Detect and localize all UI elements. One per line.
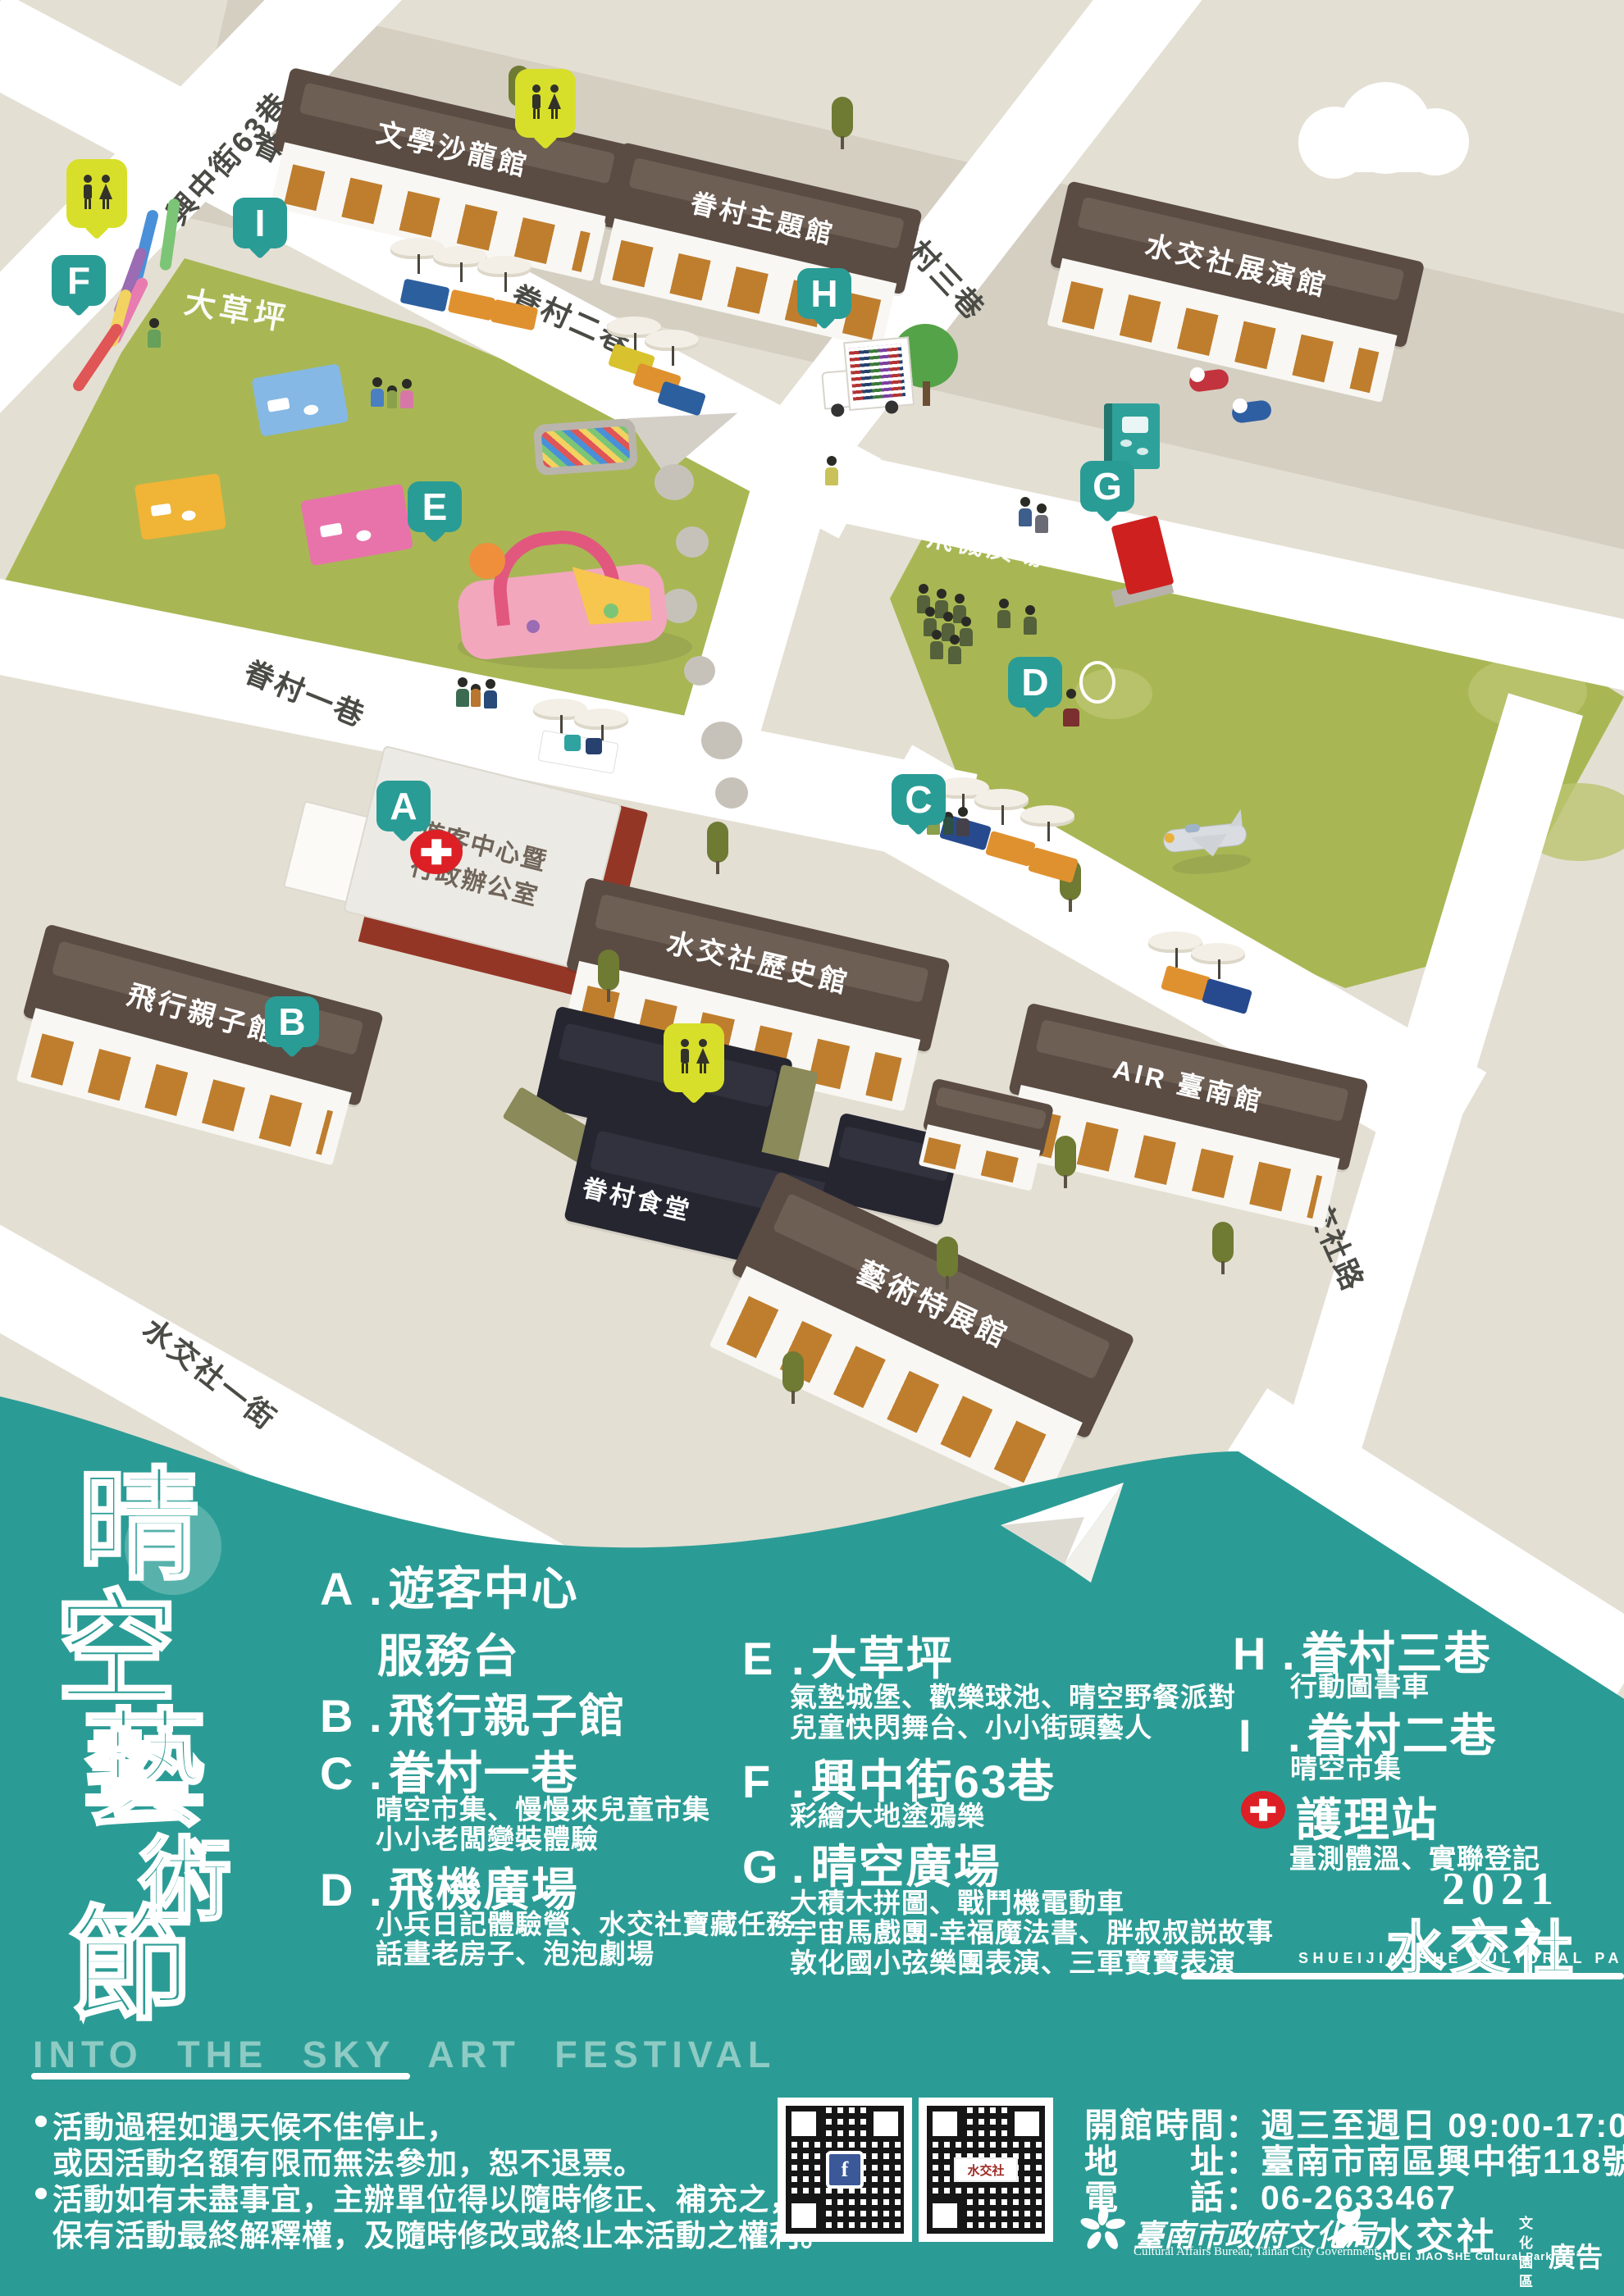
festival-logo-char: 節 (70, 1904, 193, 2027)
qr-finder (786, 2106, 822, 2142)
qr-finder (868, 2106, 904, 2142)
bureau-flower-icon (1080, 2206, 1126, 2252)
brand-park-en: SHUEIJIAOSHE CULTURAL PARK (1298, 1950, 1624, 1967)
legend-letter: D (320, 1863, 367, 1916)
qr-finder (786, 2198, 822, 2234)
facebook-icon: f (826, 2151, 864, 2189)
legend-letter: I (1239, 1709, 1286, 1762)
legend-section: 晴 空 藝 術 節 A.遊客中心 服務台 B.飛行親子館 C.眷村一巷 晴空市集… (0, 0, 1624, 2296)
festival-title-en: INTO THE SKY ART FESTIVAL (33, 2034, 776, 2076)
legend-detail: 話畫老房子、泡泡劇場 (376, 1932, 655, 1971)
qr-finder (1009, 2106, 1045, 2142)
legend-letter: A (320, 1562, 367, 1615)
qr-finder (927, 2198, 963, 2234)
qr-code-facebook: f (778, 2098, 912, 2242)
festival-logo-char: 晴 (78, 1466, 199, 1588)
legend-letter: G (742, 1840, 790, 1893)
legend-item-a: A.遊客中心 (320, 1552, 579, 1619)
legend-detail: 小小老闆變裝體驗 (376, 1817, 599, 1856)
festival-logo-char: 藝 (82, 1707, 207, 1832)
qr-finder (927, 2106, 963, 2142)
legend-title: 飛行親子館 (389, 1690, 627, 1742)
paper-airplane-icon (992, 1468, 1140, 1603)
legend-detail: 敦化國小弦樂團表演、三軍寶寶表演 (790, 1941, 1236, 1980)
note-line: 保有活動最終解釋權，及隨時修改或終止本活動之權利。 (52, 2211, 832, 2255)
legend-detail: 晴空市集 (1290, 1747, 1402, 1786)
ad-label: 廣告 (1549, 2235, 1603, 2275)
legend-letter: H (1233, 1627, 1280, 1680)
legend-letter: B (320, 1689, 367, 1742)
festival-map-poster: 興中街63巷 眷村二巷 眷村三巷 眷村二巷 眷村一巷 水交社一街 水交社路 大草… (0, 0, 1624, 2296)
legend-detail: 兒童快閃舞台、小小街頭藝人 (790, 1706, 1152, 1745)
legend-detail: 彩繪大地塗鴉樂 (790, 1794, 985, 1834)
legend-letter: C (320, 1747, 367, 1800)
qr-center-label: 水交社 (954, 2157, 1018, 2182)
divider-line (31, 2073, 410, 2080)
note-bullet (35, 2188, 47, 2199)
legend-letter: F (742, 1755, 790, 1808)
legend-title: 遊客中心 (389, 1563, 579, 1615)
park-mark-icon (1330, 2204, 1368, 2250)
note-bullet (35, 2116, 47, 2127)
legend-separator: . (369, 1690, 384, 1742)
nursing-station-icon (1241, 1791, 1285, 1829)
park-name-side: 文化園區 (1519, 2214, 1537, 2292)
legend-separator: . (369, 1563, 384, 1615)
qr-code-park: 水交社 (919, 2098, 1053, 2242)
legend-item-b: B.飛行親子館 (320, 1679, 627, 1746)
divider-line (1181, 1973, 1624, 1979)
legend-detail: 行動圖書車 (1290, 1665, 1430, 1704)
legend-letter: E (742, 1632, 790, 1685)
qr-park-name: 水交社 (967, 2162, 1004, 2179)
legend-item-a-sub: 服務台 (377, 1619, 520, 1686)
festival-logo-char: 空 (56, 1589, 177, 1711)
facebook-f: f (842, 2157, 849, 2182)
